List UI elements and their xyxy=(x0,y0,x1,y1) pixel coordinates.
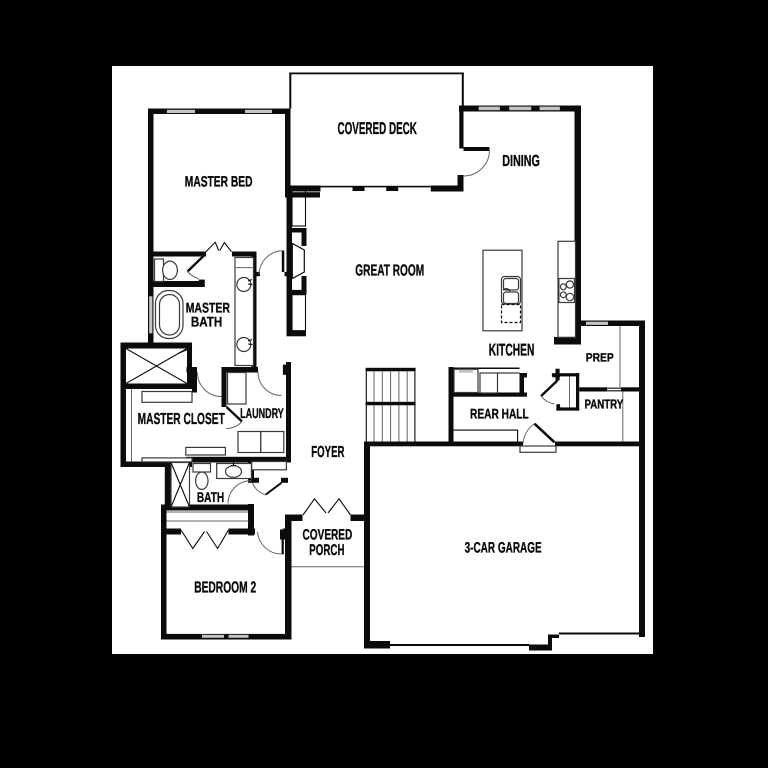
svg-text:MASTER CLOSET: MASTER CLOSET xyxy=(138,411,225,428)
svg-text:MASTER BED: MASTER BED xyxy=(185,174,253,191)
svg-text:COVERED DECK: COVERED DECK xyxy=(338,119,418,138)
svg-text:BATH: BATH xyxy=(191,313,222,329)
svg-text:BEDROOM 2: BEDROOM 2 xyxy=(194,580,256,597)
svg-text:REAR HALL: REAR HALL xyxy=(470,406,529,422)
svg-text:BATH: BATH xyxy=(197,489,224,505)
svg-text:FOYER: FOYER xyxy=(311,444,344,461)
svg-text:KITCHEN: KITCHEN xyxy=(489,341,535,360)
svg-text:PORCH: PORCH xyxy=(309,542,344,559)
svg-text:DINING: DINING xyxy=(502,153,540,170)
svg-text:3-CAR GARAGE: 3-CAR GARAGE xyxy=(465,540,542,557)
svg-text:GREAT ROOM: GREAT ROOM xyxy=(355,263,424,280)
svg-text:LAUNDRY: LAUNDRY xyxy=(240,405,284,421)
svg-text:COVERED: COVERED xyxy=(303,526,353,543)
svg-text:PANTRY: PANTRY xyxy=(585,396,624,411)
svg-text:PREP: PREP xyxy=(586,350,614,364)
